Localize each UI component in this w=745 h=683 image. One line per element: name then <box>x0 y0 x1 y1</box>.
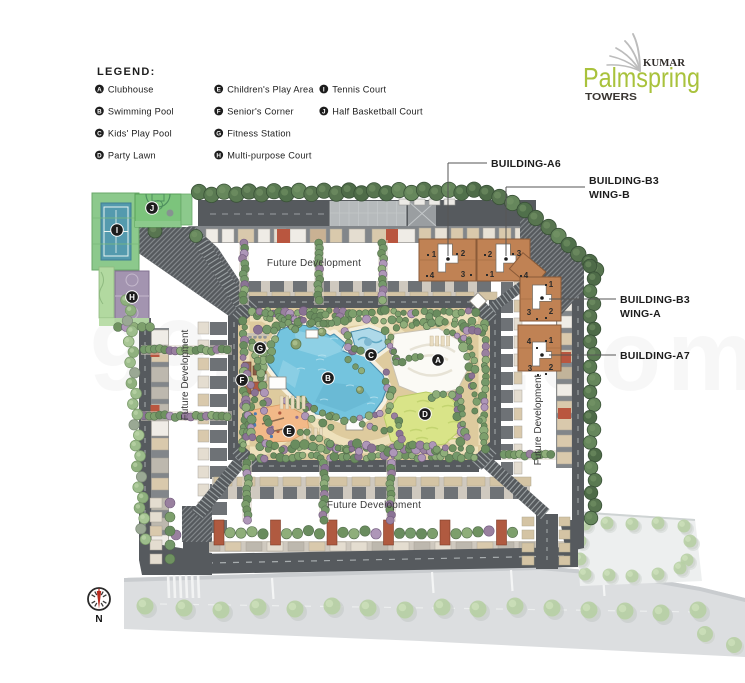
svg-text:Future Development: Future Development <box>267 258 361 269</box>
svg-text:4: 4 <box>430 271 435 280</box>
svg-text:Palmspring: Palmspring <box>583 62 700 93</box>
svg-text:F: F <box>240 376 245 385</box>
svg-text:3: 3 <box>517 249 522 258</box>
svg-text:BUILDING-A7: BUILDING-A7 <box>620 350 690 362</box>
svg-text:E: E <box>217 87 221 94</box>
svg-text:G: G <box>216 131 221 138</box>
svg-text:I: I <box>116 226 118 235</box>
svg-text:B: B <box>325 374 331 383</box>
svg-text:B: B <box>97 109 102 116</box>
svg-text:1: 1 <box>549 336 554 345</box>
svg-text:Fitness Station: Fitness Station <box>227 128 291 138</box>
svg-text:A: A <box>435 356 441 365</box>
svg-text:BUILDING-B3: BUILDING-B3 <box>620 294 690 306</box>
svg-text:Kids' Play Pool: Kids' Play Pool <box>108 128 172 138</box>
svg-text:Senior's Corner: Senior's Corner <box>227 106 294 116</box>
svg-text:J: J <box>322 109 326 116</box>
svg-text:Half Basketball Court: Half Basketball Court <box>332 106 423 116</box>
svg-text:LEGEND:: LEGEND: <box>97 66 156 78</box>
svg-text:1: 1 <box>432 250 437 259</box>
svg-text:J: J <box>150 204 154 213</box>
svg-text:Party Lawn: Party Lawn <box>108 150 156 160</box>
svg-text:WING-A: WING-A <box>620 308 661 320</box>
svg-text:I: I <box>323 87 325 94</box>
svg-text:A: A <box>97 87 102 94</box>
svg-text:Tennis Court: Tennis Court <box>332 84 386 94</box>
svg-text:1: 1 <box>490 270 495 279</box>
svg-text:N: N <box>95 614 102 625</box>
svg-text:Multi-purpose Court: Multi-purpose Court <box>227 150 312 160</box>
svg-text:WING-B: WING-B <box>589 189 630 201</box>
svg-text:BUILDING-B3: BUILDING-B3 <box>589 175 659 187</box>
svg-text:3: 3 <box>461 270 466 279</box>
svg-text:H: H <box>129 293 135 302</box>
svg-text:F: F <box>217 109 221 116</box>
svg-text:Clubhouse: Clubhouse <box>108 84 154 94</box>
svg-text:G: G <box>257 344 263 353</box>
svg-text:2: 2 <box>549 307 554 316</box>
svg-text:E: E <box>286 427 292 436</box>
svg-text:H: H <box>216 153 221 160</box>
svg-text:Future Development: Future Development <box>180 329 191 420</box>
svg-text:4: 4 <box>524 271 529 280</box>
svg-text:BUILDING-A6: BUILDING-A6 <box>491 158 561 170</box>
svg-text:Future Development: Future Development <box>327 500 421 511</box>
svg-text:2: 2 <box>549 363 554 372</box>
svg-text:2: 2 <box>461 249 466 258</box>
svg-text:2: 2 <box>488 250 493 259</box>
svg-text:1: 1 <box>549 280 554 289</box>
svg-text:D: D <box>422 410 428 419</box>
svg-text:TOWERS: TOWERS <box>585 91 637 103</box>
svg-text:Swimming Pool: Swimming Pool <box>108 106 174 116</box>
svg-text:4: 4 <box>527 337 532 346</box>
svg-text:C: C <box>97 131 102 138</box>
svg-text:3: 3 <box>527 308 532 317</box>
svg-text:C: C <box>368 351 374 360</box>
svg-text:Children's Play Area: Children's Play Area <box>227 84 314 94</box>
svg-text:D: D <box>97 153 102 160</box>
svg-text:Future Development: Future Development <box>533 374 544 465</box>
svg-text:3: 3 <box>528 364 533 373</box>
